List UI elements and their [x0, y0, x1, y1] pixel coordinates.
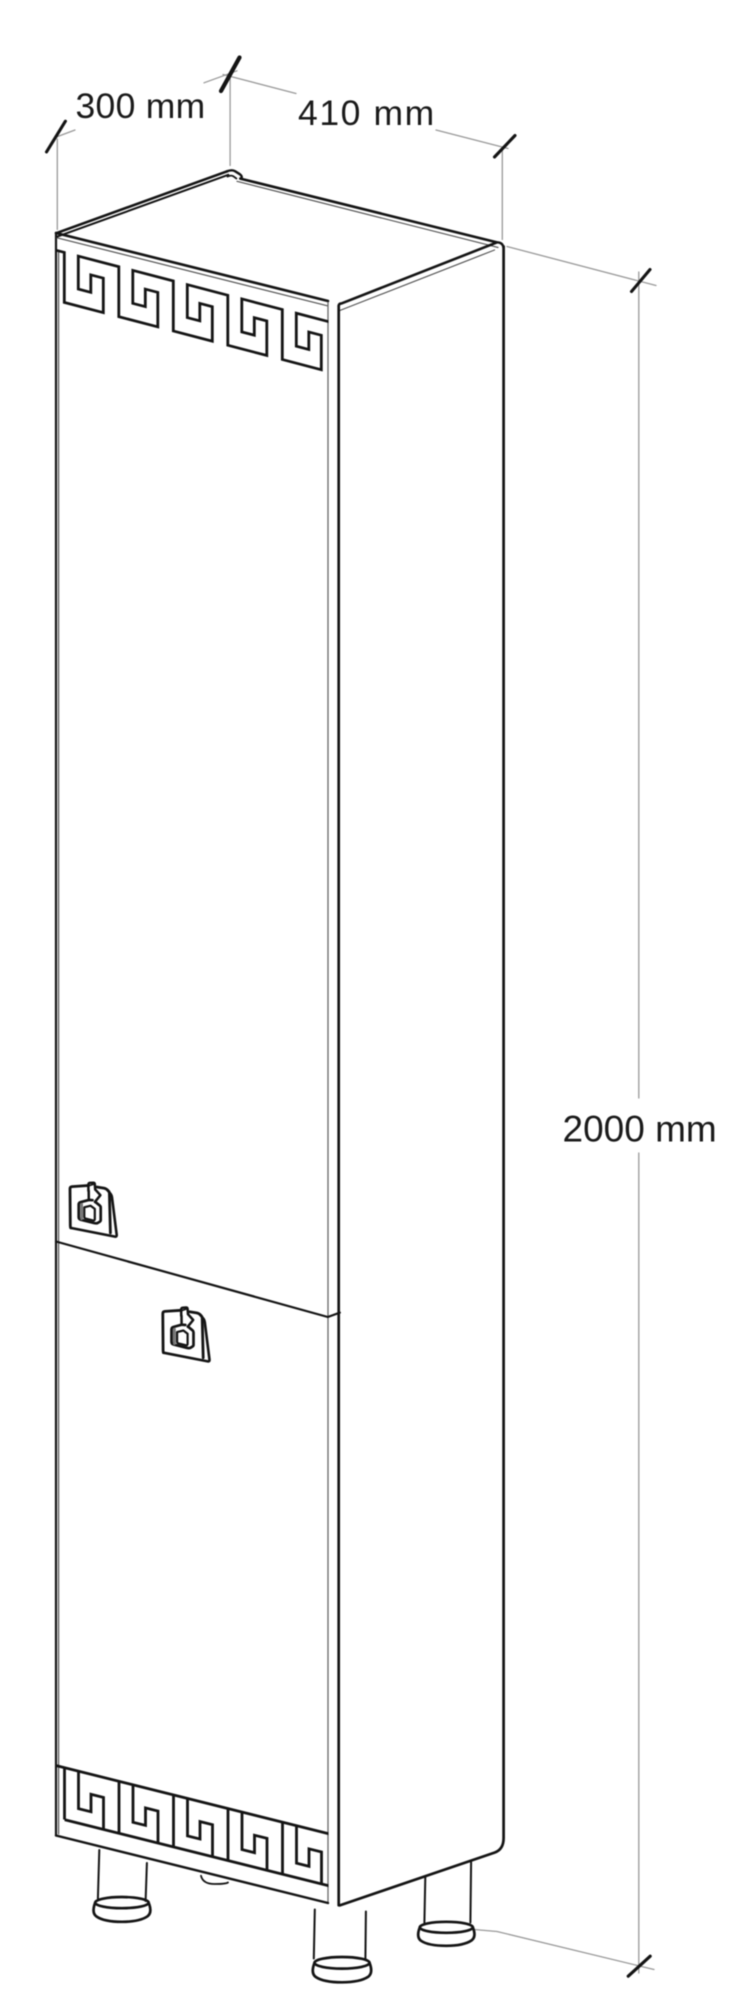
svg-text:410 mm: 410 mm — [298, 93, 436, 133]
svg-text:2000 mm: 2000 mm — [563, 1108, 717, 1149]
svg-text:300 mm: 300 mm — [76, 86, 206, 126]
